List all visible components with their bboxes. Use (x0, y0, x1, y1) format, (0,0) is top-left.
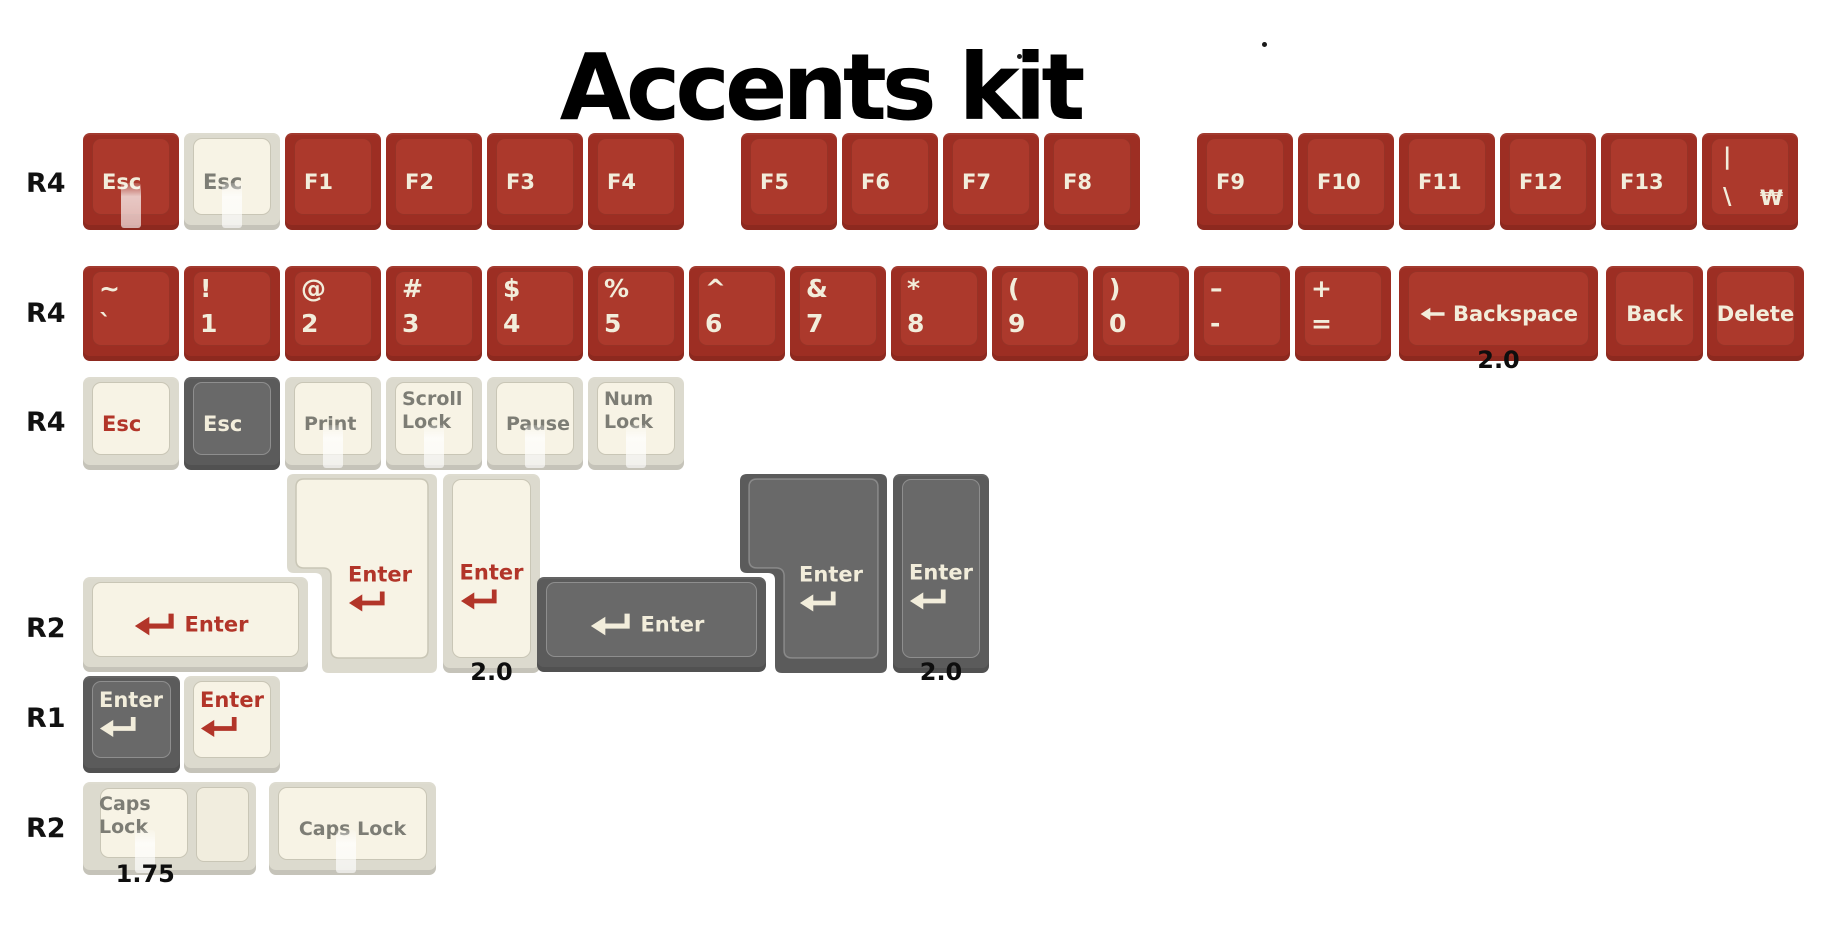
key-legend: Enter (799, 563, 863, 616)
key-legend-text: Enter (348, 563, 412, 587)
key-legend-line: % (604, 271, 629, 306)
key-enter-small-cream: Enter (184, 676, 280, 773)
key-pipe-backslash-won: |\₩ (1702, 133, 1798, 230)
key-f1: F1 (285, 133, 381, 230)
key-legend: #3 (402, 271, 423, 341)
key-f7: F7 (943, 133, 1039, 230)
key-legend: Enter (348, 563, 412, 616)
row-label-4: R1 (26, 703, 66, 734)
size-label: 2.0 (920, 658, 963, 686)
key-legend-line: # (402, 271, 423, 306)
key-minus-underscore: –- (1194, 266, 1290, 361)
key-legend-line: 5 (604, 306, 629, 341)
key-esc-red: Esc (83, 133, 179, 230)
key-legend-line: 9 (1008, 306, 1025, 341)
key-legend-line: ( (1008, 271, 1025, 306)
key-num7: &7 (790, 266, 886, 361)
return-arrow-icon (348, 589, 386, 616)
key-num5: %5 (588, 266, 684, 361)
key-legend: F1 (304, 170, 333, 194)
key-wide-enter-cream: Enter (83, 577, 308, 672)
key-esc-dark-gray: Esc (184, 377, 280, 470)
key-f2: F2 (386, 133, 482, 230)
return-arrow-icon (589, 610, 631, 639)
key-legend: F13 (1620, 170, 1664, 194)
key-legend-text: Enter (200, 688, 264, 712)
key-legend: Enter (200, 688, 264, 741)
key-legend: @2 (301, 271, 326, 341)
size-label: 1.75 (116, 860, 175, 888)
key-legend: Enter (909, 561, 973, 614)
key-wide-enter-gray: Enter (537, 577, 766, 672)
key-pause: Pause (487, 377, 583, 470)
left-arrow-icon (1419, 306, 1446, 322)
key-legend: *8 (907, 271, 924, 341)
size-label: 2.0 (470, 658, 513, 686)
key-legend-line: @ (301, 271, 326, 306)
row-label-3: R2 (26, 613, 66, 644)
key-num0: )0 (1093, 266, 1189, 361)
key-legend: %5 (604, 271, 629, 341)
return-arrow-icon (799, 589, 837, 616)
key-caps-lock-wide: Caps Lock (269, 782, 436, 875)
return-arrow-icon (460, 587, 498, 614)
key-legend: –- (1210, 271, 1223, 341)
key-plus-equals: += (1295, 266, 1391, 361)
key-f5: F5 (741, 133, 837, 230)
return-arrow-icon (909, 587, 947, 614)
key-legend: $4 (503, 271, 520, 341)
key-legend: Enter (460, 561, 524, 614)
shine-mark (626, 425, 646, 468)
key-num1: !1 (184, 266, 280, 361)
key-tall-enter-cream: Enter2.0 (443, 474, 540, 673)
key-f10: F10 (1298, 133, 1394, 230)
key-legend: &7 (806, 271, 828, 341)
key-legend: !1 (200, 271, 217, 341)
key-legend: F6 (861, 170, 890, 194)
key-legend-line: 1 (200, 306, 217, 341)
key-legend-line: Num (604, 388, 653, 411)
key-legend: F9 (1216, 170, 1245, 194)
key-legend-text: \ (1723, 184, 1731, 210)
return-arrow-icon (134, 610, 176, 639)
key-legend: Backspace (1419, 302, 1578, 326)
key-f9: F9 (1197, 133, 1293, 230)
key-legend: Enter (134, 610, 249, 639)
key-legend-line: & (806, 271, 828, 306)
key-legend-text: Enter (185, 613, 249, 637)
key-legend: ~` (99, 271, 120, 341)
key-legend: F11 (1418, 170, 1462, 194)
key-f3: F3 (487, 133, 583, 230)
key-legend-line: + (1311, 271, 1332, 306)
key-legend-line: ^ (705, 271, 726, 306)
key-legend-line: ` (99, 306, 120, 341)
key-tilde-grave: ~` (83, 266, 179, 361)
keycap-step (196, 787, 249, 862)
key-legend: Esc (203, 412, 242, 436)
shine-mark (336, 830, 356, 873)
key-legend: (9 (1008, 271, 1025, 341)
key-f6: F6 (842, 133, 938, 230)
row-label-5: R2 (26, 813, 66, 844)
stray-dot-1 (1262, 42, 1267, 47)
key-iso-enter-gray: Enter (740, 474, 887, 673)
shine-mark (424, 425, 444, 468)
key-legend-line: 7 (806, 306, 828, 341)
key-legend: F3 (506, 170, 535, 194)
stray-dot-0 (1017, 54, 1022, 59)
key-legend-line: ! (200, 271, 217, 306)
shine-mark (121, 183, 141, 228)
key-legend-line: 2 (301, 306, 326, 341)
key-legend-line: Scroll (402, 388, 462, 411)
return-arrow-icon (200, 714, 238, 741)
key-legend-text: Enter (640, 613, 704, 637)
key-legend-text: Enter (99, 688, 163, 712)
key-legend-text: Enter (799, 563, 863, 587)
accents-kit-render: Accents kit R4R4R4R2R1R2 EscEscF1F2F3F4F… (0, 0, 1823, 931)
key-esc-accent-cream: Esc (83, 377, 179, 470)
return-arrow-icon (99, 714, 137, 741)
key-f8: F8 (1044, 133, 1140, 230)
key-iso-enter-cream: Enter (287, 474, 437, 673)
key-legend-line: * (907, 271, 924, 306)
key-num6: ^6 (689, 266, 785, 361)
key-num4: $4 (487, 266, 583, 361)
shine-mark (525, 425, 545, 468)
key-legend-line: 8 (907, 306, 924, 341)
key-num8: *8 (891, 266, 987, 361)
key-legend-text: Backspace (1453, 302, 1578, 326)
key-legend: Enter (99, 688, 163, 741)
key-legend-line: ~ (99, 271, 120, 306)
key-scroll-lock: ScrollLock (386, 377, 482, 470)
key-num-lock: NumLock (588, 377, 684, 470)
key-legend-line: 4 (503, 306, 520, 341)
key-legend-text: Enter (460, 561, 524, 585)
key-legend: F12 (1519, 170, 1563, 194)
key-legend-line: - (1210, 306, 1223, 341)
key-caps-lock-stepped: CapsLock1.75 (83, 782, 256, 875)
key-enter-small-gray: Enter (83, 676, 180, 773)
key-legend: F2 (405, 170, 434, 194)
row-label-0: R4 (26, 168, 66, 199)
key-legend: F4 (607, 170, 636, 194)
shine-mark (222, 183, 242, 228)
key-legend: )0 (1109, 271, 1126, 341)
key-legend-line: 0 (1109, 306, 1126, 341)
key-legend: F5 (760, 170, 789, 194)
kit-title: Accents kit (560, 34, 1081, 141)
key-legend: F7 (962, 170, 991, 194)
key-legend: Esc (102, 412, 141, 436)
key-num3: #3 (386, 266, 482, 361)
key-f12: F12 (1500, 133, 1596, 230)
key-esc-cream: Esc (184, 133, 280, 230)
key-legend-line: – (1210, 271, 1223, 306)
key-tall-enter-gray: Enter2.0 (893, 474, 989, 673)
key-backspace: Backspace2.0 (1399, 266, 1598, 361)
shine-mark (323, 425, 343, 468)
key-legend: += (1311, 271, 1332, 341)
key-delete: Delete (1707, 266, 1804, 361)
key-num9: (9 (992, 266, 1088, 361)
row-label-2: R4 (26, 407, 66, 438)
key-legend-line: ) (1109, 271, 1126, 306)
key-back: Back (1606, 266, 1703, 361)
key-legend: F10 (1317, 170, 1361, 194)
row-label-1: R4 (26, 298, 66, 329)
key-legend: F8 (1063, 170, 1092, 194)
key-legend: ^6 (705, 271, 726, 341)
key-legend: Back (1626, 302, 1683, 326)
key-legend-line: $ (503, 271, 520, 306)
key-legend: Enter (589, 610, 704, 639)
key-legend: Delete (1717, 302, 1794, 326)
size-label: 2.0 (1477, 346, 1520, 374)
key-print: Print (285, 377, 381, 470)
key-f13: F13 (1601, 133, 1697, 230)
key-legend: |\₩ (1702, 133, 1798, 230)
key-legend-line: 6 (705, 306, 726, 341)
key-legend-text: Enter (909, 561, 973, 585)
key-num2: @2 (285, 266, 381, 361)
key-f4: F4 (588, 133, 684, 230)
key-legend-line: = (1311, 306, 1332, 341)
key-legend-text: | (1723, 144, 1731, 170)
key-legend-line: 3 (402, 306, 423, 341)
key-legend-text: ₩ (1760, 186, 1783, 210)
key-legend-line: Caps (99, 793, 151, 816)
key-f11: F11 (1399, 133, 1495, 230)
